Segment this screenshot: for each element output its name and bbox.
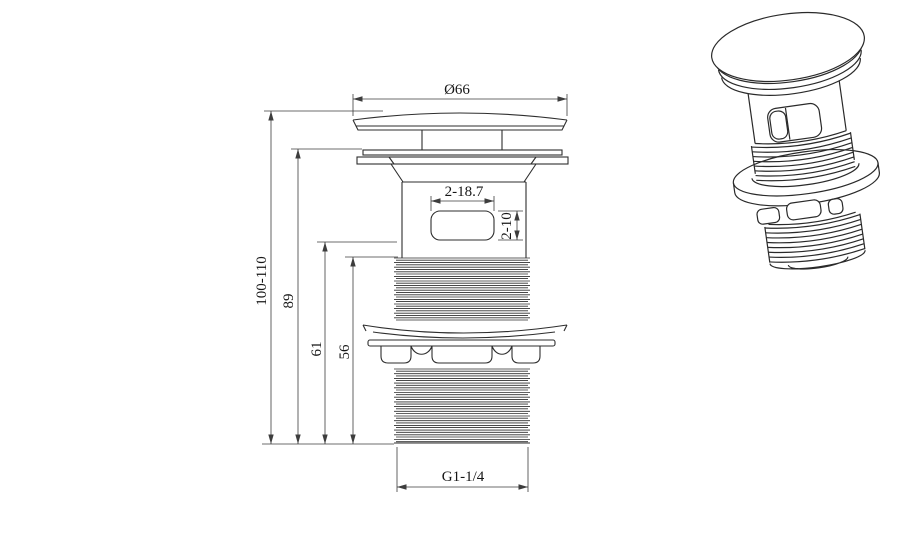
overflow-slot — [431, 211, 494, 240]
dim-label-overall-height: 100-110 — [254, 256, 270, 305]
iso-overflow-slot — [767, 102, 823, 143]
dim-label-flange-to-bottom: 89 — [281, 294, 297, 309]
drawing-canvas: Ø66 100-110 89 61 56 2-18.7 — [0, 0, 900, 538]
upper-thread-lines — [394, 258, 530, 320]
dim-overflow-slot-height: 2-10 — [498, 211, 523, 240]
isometric-view-3d — [707, 4, 895, 279]
dim-label-bottom-thread-spec: G1-1/4 — [442, 469, 485, 485]
dim-flange-to-bottom: 89 — [281, 149, 362, 444]
iso-cap — [707, 4, 871, 105]
front-view-2d: Ø66 100-110 89 61 56 2-18.7 — [254, 82, 568, 492]
cap-stem — [422, 130, 502, 150]
dim-bottom-thread-spec: G1-1/4 — [397, 447, 528, 492]
dim-label-thread-to-bottom: 56 — [337, 344, 353, 360]
washer-plate — [368, 340, 555, 346]
dim-label-overflow-slot-width: 2-18.7 — [445, 184, 484, 200]
dim-thread-to-bottom: 56 — [337, 257, 398, 444]
cap-profile — [353, 113, 567, 130]
dim-label-overflow-slot-height: 2-10 — [499, 212, 515, 240]
technical-drawing-page: Ø66 100-110 89 61 56 2-18.7 — [0, 0, 900, 538]
mid-flange-washer — [363, 325, 567, 363]
dim-overflow-slot-width: 2-18.7 — [431, 184, 494, 211]
lower-thread-lines — [394, 369, 530, 443]
dim-label-overflow-to-bottom: 61 — [309, 342, 325, 357]
dim-overall-height: 100-110 — [254, 111, 383, 444]
top-flange — [357, 150, 568, 164]
cone-transition — [391, 164, 536, 182]
iso-backnut-tabs — [756, 196, 844, 225]
backnut-tabs — [381, 346, 540, 363]
dim-label-cap-diameter: Ø66 — [444, 82, 470, 98]
iso-lower-threads — [765, 212, 867, 275]
dim-cap-diameter: Ø66 — [353, 82, 567, 116]
